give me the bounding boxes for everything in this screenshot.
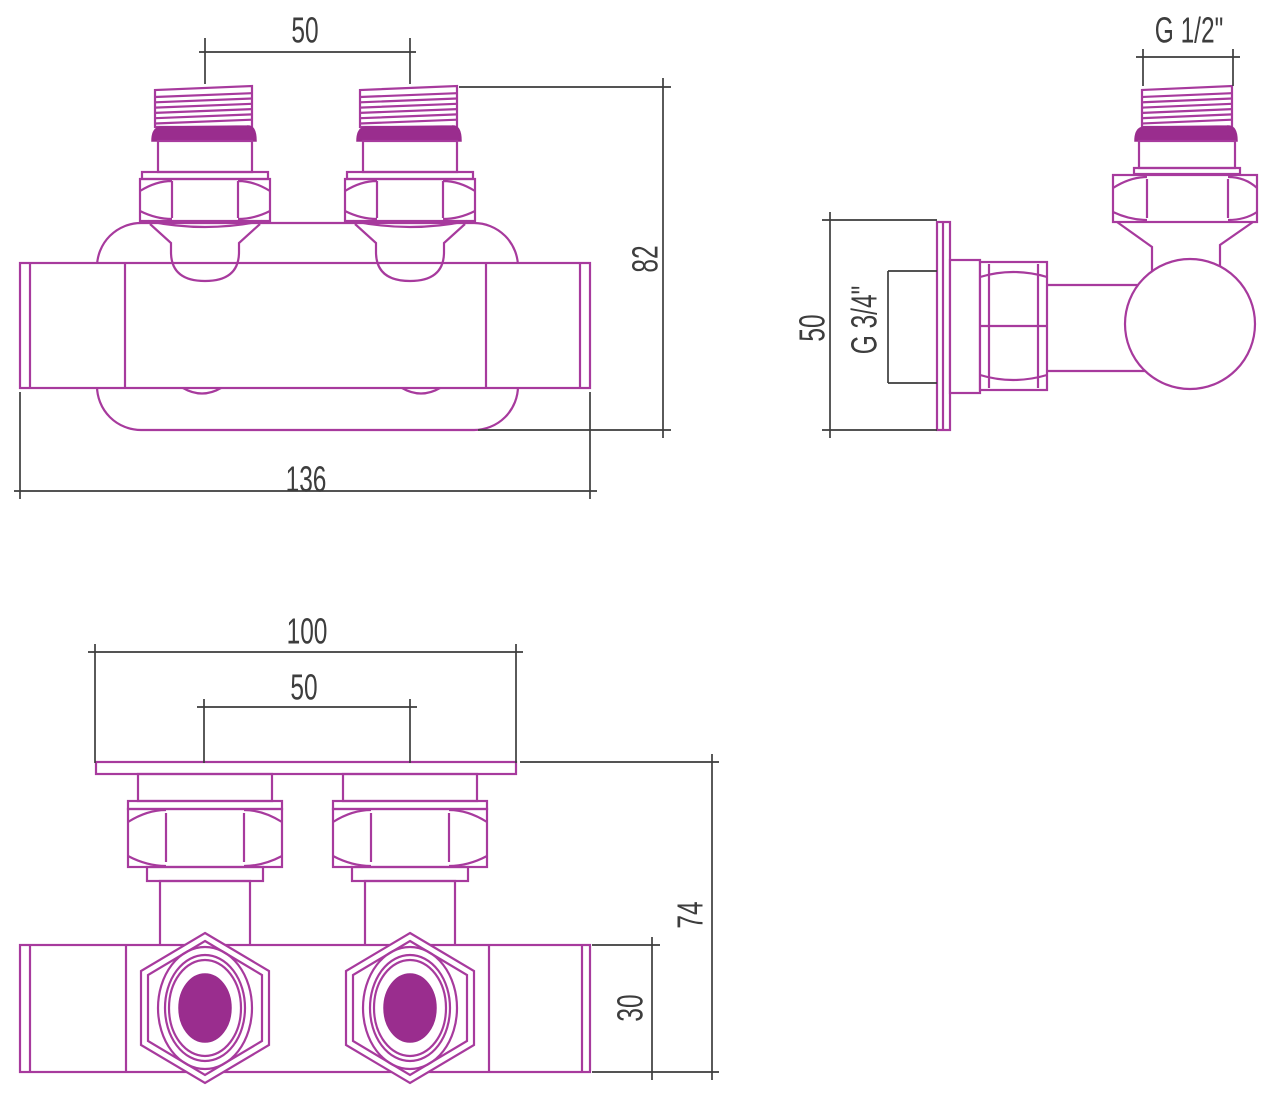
view-front: 50 82 136 <box>14 10 671 500</box>
hex-nut-facets <box>1113 177 1257 220</box>
plate-connector <box>950 260 980 393</box>
dimension-line-thread-inner <box>888 271 937 383</box>
left-collar <box>147 867 263 881</box>
right-connector <box>345 86 475 227</box>
left-hex-nut <box>128 809 282 867</box>
dim-label-body-height: 30 <box>610 994 651 1021</box>
port-opening <box>179 974 231 1042</box>
view-side: G 1/2" 50 G 3/4" <box>792 10 1257 438</box>
left-nut-cap <box>128 801 282 809</box>
hex-nut <box>140 179 270 221</box>
ball-elbow <box>1125 259 1255 389</box>
seal-band <box>152 126 256 141</box>
connector-neck <box>1139 141 1235 168</box>
dim-label-plate-width: 100 <box>287 611 328 652</box>
technical-drawing-page: 50 82 136 G 1/2" <box>0 0 1280 1102</box>
seal-band <box>1135 126 1237 141</box>
connector-neck <box>158 141 252 172</box>
front-dimensions: 50 82 136 <box>14 10 671 500</box>
right-hex-nut <box>333 809 487 867</box>
dimension-line-port-spacing <box>197 699 417 763</box>
left-stem-upper <box>138 774 272 801</box>
right-collar <box>352 867 468 881</box>
right-nut-cap <box>333 801 487 809</box>
valve-body-bottom <box>20 945 590 1072</box>
connector-neck <box>363 141 457 172</box>
view-bottom: 100 50 74 30 <box>20 611 719 1083</box>
dim-label-port-spacing: 50 <box>291 10 318 51</box>
dimension-line-thread-top <box>1136 49 1240 86</box>
dim-label-thread-inner: G 3/4" <box>844 286 885 355</box>
seal-band <box>357 126 461 141</box>
dim-label-plate-height: 50 <box>792 314 833 341</box>
valve-dimension-drawing: 50 82 136 G 1/2" <box>0 0 1280 1102</box>
hex-nut <box>345 179 475 221</box>
valve-body-cylinder <box>20 263 590 388</box>
dim-label-height: 82 <box>625 245 666 272</box>
left-hex-nut-facets <box>128 810 282 866</box>
port-opening <box>384 974 436 1042</box>
mounting-plate <box>96 762 516 774</box>
hex-nut <box>1113 175 1257 222</box>
dim-label-port-spacing: 50 <box>290 667 317 708</box>
thread-hatching <box>1142 93 1232 123</box>
right-hex-nut-facets <box>333 810 487 866</box>
thread-hatching <box>360 93 457 123</box>
right-stem-upper <box>343 774 477 801</box>
dim-label-thread-top: G 1/2" <box>1155 10 1224 51</box>
thread-hatching <box>155 93 252 123</box>
dim-label-length: 136 <box>286 459 327 500</box>
left-connector <box>140 86 270 227</box>
nut-cap <box>1134 168 1240 174</box>
dim-label-overall-height: 74 <box>670 901 711 928</box>
